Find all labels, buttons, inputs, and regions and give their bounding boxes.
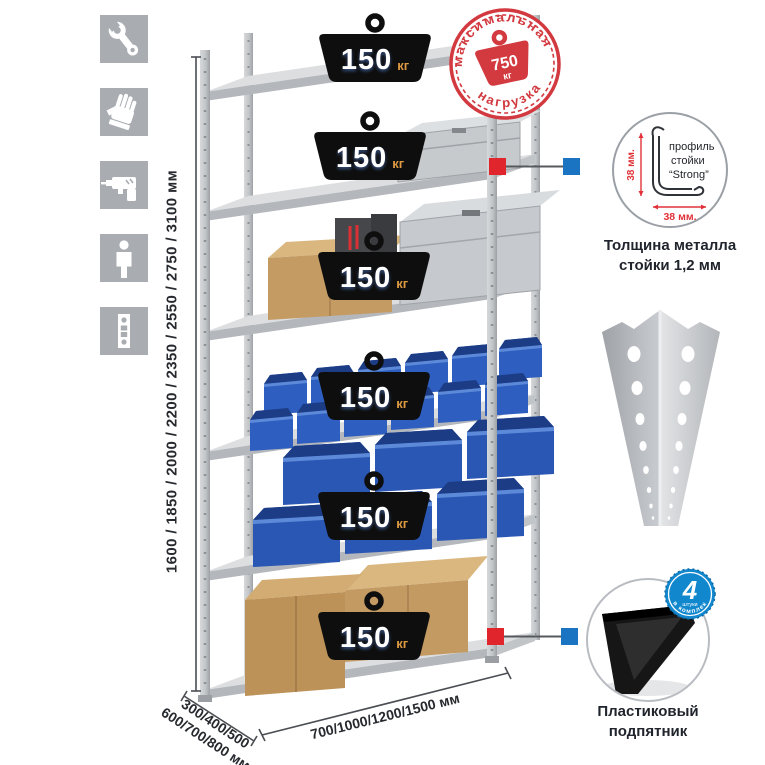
profile-dim-vertical: 38 мм. bbox=[626, 149, 637, 181]
person-icon bbox=[100, 234, 148, 282]
qty-badge: 4 штуки в комплекте bbox=[664, 568, 716, 620]
foot-caption: Пластиковый подпятник bbox=[573, 702, 723, 741]
weight-value: 150 bbox=[340, 622, 391, 655]
weight-value: 150 bbox=[336, 142, 387, 175]
weight-unit: кг bbox=[396, 276, 408, 291]
profile-dim-horizontal: 38 мм. bbox=[663, 211, 696, 223]
weight-unit: кг bbox=[396, 396, 408, 411]
weight-shelf-6: 150кг bbox=[316, 590, 432, 666]
perforated-post-icon bbox=[100, 307, 148, 355]
drill-icon bbox=[100, 161, 148, 209]
svg-text:стойки: стойки bbox=[671, 155, 705, 167]
weight-shelf-2: 150кг bbox=[312, 110, 428, 186]
profile-detail-circle: 38 мм. 38 мм. профиль стойки “Strong” bbox=[612, 112, 728, 228]
weight-value: 150 bbox=[340, 262, 391, 295]
angle-post-image bbox=[592, 302, 732, 530]
wrench-icon bbox=[100, 15, 148, 63]
svg-text:“Strong”: “Strong” bbox=[669, 169, 709, 181]
shelving-infographic: 150кг 150кг 150кг 150кг 150кг 150кг bbox=[0, 0, 765, 765]
weight-shelf-3: 150кг bbox=[316, 230, 432, 306]
weight-shelf-4: 150кг bbox=[316, 350, 432, 426]
profile-label: профиль стойки “Strong” bbox=[669, 141, 715, 181]
weight-shelf-1: 150кг bbox=[317, 12, 433, 88]
weight-unit: кг bbox=[396, 636, 408, 651]
max-load-stamp: максимальная нагрузка 750 кг bbox=[449, 8, 561, 120]
weight-unit: кг bbox=[397, 58, 409, 73]
badge-small-text: штуки bbox=[682, 602, 697, 608]
weight-value: 150 bbox=[340, 382, 391, 415]
profile-caption: Толщина металла стойки 1,2 мм bbox=[580, 236, 760, 275]
weight-shelf-5: 150кг bbox=[316, 470, 432, 546]
weight-unit: кг bbox=[392, 156, 404, 171]
svg-text:профиль: профиль bbox=[669, 141, 715, 153]
weight-value: 150 bbox=[340, 502, 391, 535]
gloves-icon bbox=[100, 88, 148, 136]
weight-unit: кг bbox=[396, 516, 408, 531]
height-dimension-label: 1600 / 1850 / 2000 / 2200 / 2350 / 2550 … bbox=[164, 72, 181, 672]
weight-value: 150 bbox=[341, 44, 392, 77]
badge-value: 4 bbox=[682, 575, 698, 605]
